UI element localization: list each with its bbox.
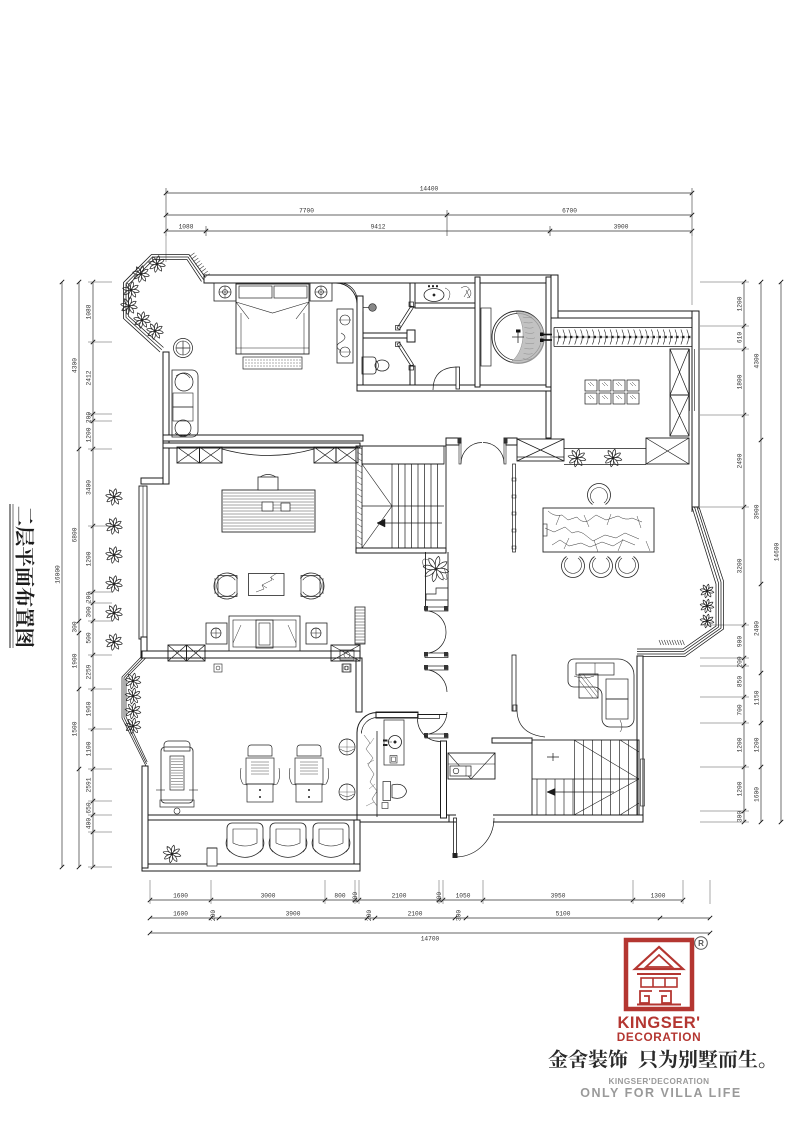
svg-text:200: 200 (86, 592, 93, 603)
svg-text:R: R (698, 939, 704, 948)
svg-text:1200: 1200 (737, 737, 744, 752)
svg-text:800: 800 (334, 893, 345, 900)
svg-text:2259: 2259 (86, 664, 93, 679)
svg-text:1200: 1200 (737, 781, 744, 796)
svg-text:900: 900 (737, 636, 744, 647)
svg-text:1600: 1600 (754, 787, 761, 802)
svg-text:6700: 6700 (562, 208, 577, 215)
svg-text:2412: 2412 (86, 370, 93, 385)
svg-text:3900: 3900 (614, 224, 629, 231)
svg-text:1200: 1200 (754, 737, 761, 752)
svg-text:DECORATION: DECORATION (617, 1030, 701, 1044)
svg-text:2100: 2100 (408, 911, 423, 918)
svg-text:1200: 1200 (737, 296, 744, 311)
svg-text:1600: 1600 (173, 911, 188, 918)
svg-text:2490: 2490 (737, 453, 744, 468)
svg-text:1200: 1200 (86, 427, 93, 442)
svg-text:1050: 1050 (456, 893, 471, 900)
svg-text:610: 610 (737, 332, 744, 343)
svg-text:7700: 7700 (299, 208, 314, 215)
svg-text:4300: 4300 (72, 358, 79, 373)
svg-text:3400: 3400 (86, 480, 93, 495)
svg-text:400: 400 (86, 818, 93, 829)
svg-text:14600: 14600 (774, 542, 781, 561)
svg-text:1088: 1088 (179, 224, 194, 231)
svg-text:1088: 1088 (86, 304, 93, 319)
svg-text:ONLY FOR VILLA LIFE: ONLY FOR VILLA LIFE (580, 1086, 741, 1100)
svg-text:1150: 1150 (754, 690, 761, 705)
svg-text:300: 300 (737, 811, 744, 822)
svg-text:6800: 6800 (72, 527, 79, 542)
svg-text:3000: 3000 (261, 893, 276, 900)
svg-text:200: 200 (86, 412, 93, 423)
svg-text:850: 850 (737, 676, 744, 687)
svg-text:9412: 9412 (371, 224, 386, 231)
svg-text:200: 200 (366, 910, 373, 921)
svg-text:300: 300 (456, 910, 463, 921)
svg-text:1960: 1960 (86, 701, 93, 716)
svg-text:300: 300 (72, 621, 79, 632)
svg-text:2591: 2591 (86, 777, 93, 792)
svg-text:650: 650 (86, 802, 93, 813)
svg-text:2100: 2100 (392, 893, 407, 900)
svg-text:500: 500 (86, 632, 93, 643)
svg-text:3900: 3900 (286, 911, 301, 918)
svg-text:3200: 3200 (737, 558, 744, 573)
svg-text:14700: 14700 (421, 936, 440, 943)
svg-text:100: 100 (352, 892, 359, 903)
svg-text:5100: 5100 (556, 911, 571, 918)
svg-text:1300: 1300 (651, 893, 666, 900)
svg-text:1900: 1900 (72, 653, 79, 668)
svg-text:1100: 1100 (86, 741, 93, 756)
svg-text:1800: 1800 (737, 374, 744, 389)
svg-text:2400: 2400 (754, 621, 761, 636)
svg-text:3950: 3950 (551, 893, 566, 900)
svg-text:4300: 4300 (754, 353, 761, 368)
svg-text:3900: 3900 (754, 504, 761, 519)
svg-text:16000: 16000 (55, 565, 62, 584)
svg-text:200: 200 (210, 910, 217, 921)
svg-text:1600: 1600 (173, 893, 188, 900)
svg-text:300: 300 (86, 606, 93, 617)
svg-text:100: 100 (436, 892, 443, 903)
svg-text:1200: 1200 (86, 551, 93, 566)
svg-text:14400: 14400 (420, 186, 439, 193)
svg-text:KINGSER'DECORATION: KINGSER'DECORATION (609, 1077, 710, 1086)
svg-text:1500: 1500 (72, 721, 79, 736)
svg-text:700: 700 (737, 704, 744, 715)
